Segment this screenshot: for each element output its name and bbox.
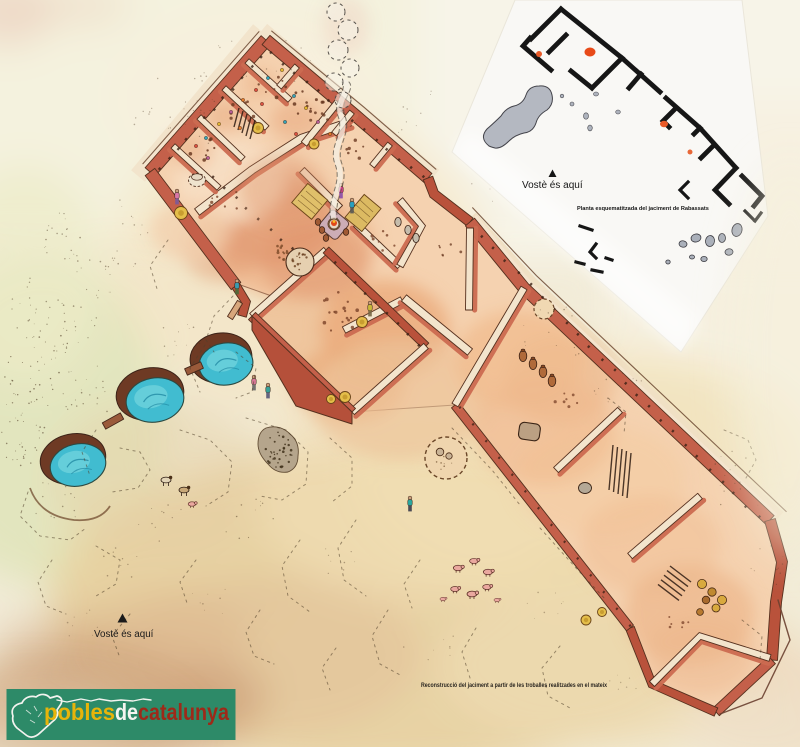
svg-text:Planta esquematitzada del jaci: Planta esquematitzada del jaciment de Ra… [577, 206, 709, 212]
svg-text:poblesdecatalunya: poblesdecatalunya [44, 699, 229, 725]
svg-text:Reconstrucció del jaciment a p: Reconstrucció del jaciment a partir de l… [421, 682, 607, 689]
svg-text:Vostè és aquí: Vostè és aquí [522, 180, 583, 191]
svg-text:Vostè és aquí: Vostè és aquí [94, 629, 154, 640]
